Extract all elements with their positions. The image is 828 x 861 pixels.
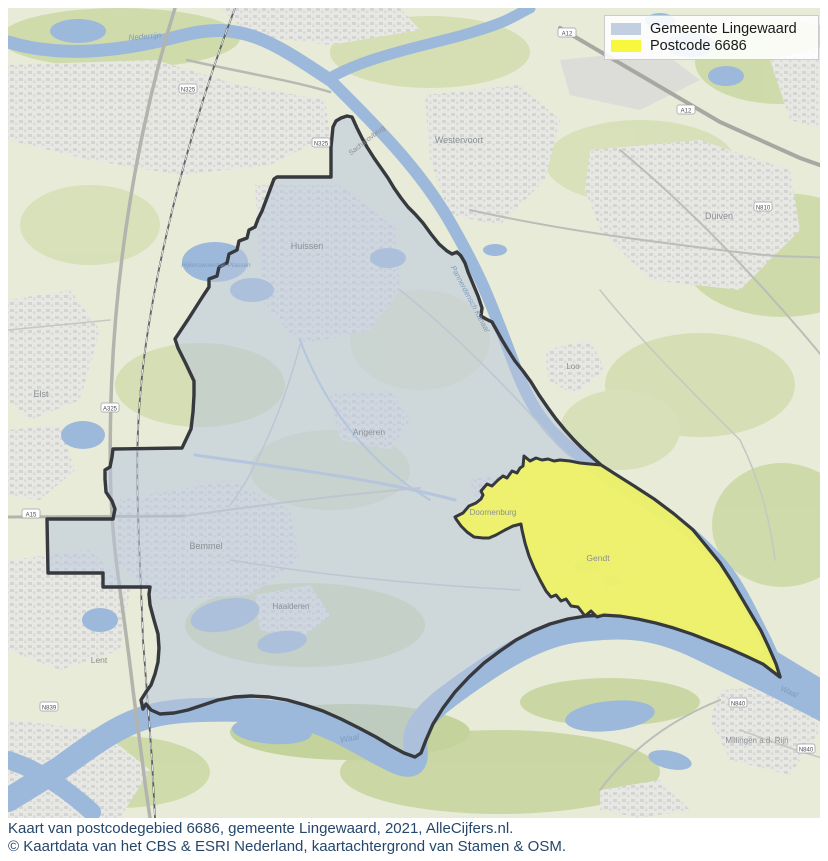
map-legend: Gemeente Lingewaard Postcode 6686	[604, 15, 819, 60]
road-badge: A12	[677, 105, 695, 114]
map-canvas[interactable]: WestervoortDuivenHuissenAngerenBemmelHaa…	[8, 8, 820, 818]
svg-text:A325: A325	[103, 406, 118, 412]
map-label: Doornenburg	[470, 508, 517, 517]
road-badge: N325	[312, 138, 330, 147]
map-label: Rijkerswoerdse Plassen	[181, 262, 251, 269]
svg-text:N325: N325	[181, 87, 196, 93]
road-badge: N810	[754, 202, 772, 211]
map-label: Huissen	[291, 241, 324, 251]
road-badge: A325	[101, 403, 119, 412]
map-caption: Kaart van postcodegebied 6686, gemeente …	[8, 820, 820, 856]
map-label: Lent	[91, 655, 108, 665]
road-badge: N325	[179, 84, 197, 93]
map-label: Gendt	[586, 553, 610, 563]
legend-row-municipality: Gemeente Lingewaard	[611, 21, 812, 37]
svg-text:N839: N839	[42, 705, 57, 711]
legend-label-postcode: Postcode 6686	[650, 38, 747, 54]
caption-title: Kaart van postcodegebied 6686, gemeente …	[8, 820, 820, 838]
base-map: WestervoortDuivenHuissenAngerenBemmelHaa…	[8, 8, 820, 818]
svg-text:A12: A12	[562, 31, 573, 37]
postcode-color-swatch	[611, 40, 641, 52]
svg-text:N840: N840	[731, 701, 746, 707]
road-badge: N839	[40, 702, 58, 711]
svg-text:N840: N840	[799, 747, 814, 753]
road-badge: A12	[558, 28, 576, 37]
svg-text:N325: N325	[314, 141, 329, 147]
municipality-color-swatch	[611, 23, 641, 35]
legend-label-municipality: Gemeente Lingewaard	[650, 21, 797, 37]
map-label: Elst	[33, 389, 49, 399]
road-badge: A15	[22, 509, 40, 518]
road-badge: N840	[729, 698, 747, 707]
map-label: Duiven	[705, 211, 733, 221]
map-label: Loo	[566, 362, 580, 371]
map-label: Haalderen	[273, 602, 310, 611]
map-label: Westervoort	[435, 135, 484, 145]
road-badge: N840	[797, 744, 815, 753]
map-label: Angeren	[353, 427, 385, 437]
legend-row-postcode: Postcode 6686	[611, 38, 812, 54]
svg-text:N810: N810	[756, 205, 771, 211]
caption-attribution: © Kaartdata van het CBS & ESRI Nederland…	[8, 838, 820, 856]
page: { "legend": { "items": [ {"label": "Geme…	[0, 0, 828, 861]
map-label: Bemmel	[189, 541, 222, 551]
map-label: Millingen a.d. Rijn	[725, 736, 788, 745]
svg-text:A12: A12	[681, 108, 692, 114]
svg-text:A15: A15	[26, 512, 37, 518]
